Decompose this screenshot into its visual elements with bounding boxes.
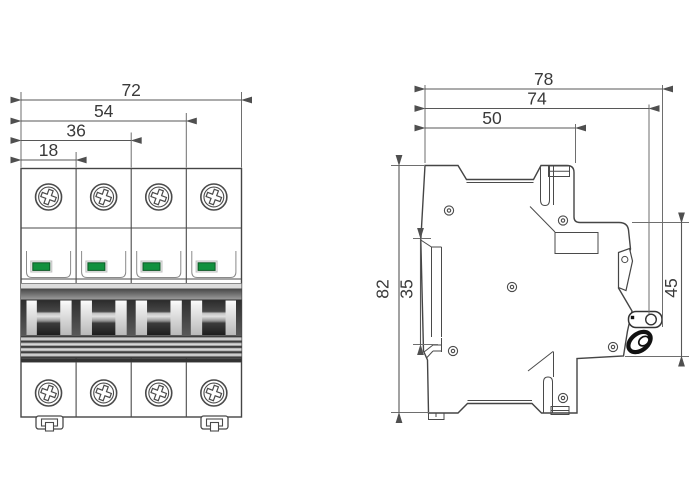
dim-label: 36 xyxy=(66,121,85,141)
side-body xyxy=(421,166,632,414)
dim-depth-74: 74 xyxy=(425,89,649,109)
terminal-screw-icon xyxy=(91,184,117,210)
dim-depth-50: 50 xyxy=(425,108,576,128)
dim-label: 78 xyxy=(534,69,553,89)
dim-width-72: 72 xyxy=(21,80,242,100)
side-view xyxy=(421,166,662,420)
dim-label: 18 xyxy=(39,140,58,160)
terminal-screw-icon xyxy=(36,380,62,406)
din-rail-clip xyxy=(201,416,228,431)
dim-label: 74 xyxy=(527,89,547,109)
terminal-screw-icon xyxy=(146,184,172,210)
green-indicator xyxy=(33,263,50,271)
dim-depth-78: 78 xyxy=(425,69,663,89)
dim-label: 35 xyxy=(397,279,417,298)
mcb-dimension-drawing: 72 54 36 18 xyxy=(0,0,700,500)
terminal-screw-icon xyxy=(36,184,62,210)
dim-width-54: 54 xyxy=(21,101,186,121)
dim-label: 54 xyxy=(94,101,114,121)
green-indicator xyxy=(143,263,160,271)
terminal-screw-icon xyxy=(201,380,227,406)
toggle-band xyxy=(21,284,242,363)
terminal-screw-icon xyxy=(201,184,227,210)
rivet-icon xyxy=(444,206,453,215)
front-dimensions: 72 54 36 18 xyxy=(21,80,242,168)
toggle-handle xyxy=(202,300,225,335)
rivet-icon xyxy=(558,216,567,225)
toggle-handle xyxy=(37,300,60,335)
dim-label: 50 xyxy=(482,108,502,128)
rivet-icon xyxy=(448,346,457,355)
rivet-icon xyxy=(558,393,567,402)
green-indicator xyxy=(198,263,215,271)
dim-label: 45 xyxy=(661,278,681,297)
terminal-screw-icon xyxy=(146,380,172,406)
front-view xyxy=(21,169,242,432)
rivet-icon xyxy=(608,342,617,351)
toggle-handle xyxy=(147,300,170,335)
side-toggle-knob xyxy=(625,328,655,356)
din-rail-clip xyxy=(36,416,63,431)
rivet-icon xyxy=(507,282,516,291)
terminal-screw-icon xyxy=(91,380,117,406)
dim-label: 72 xyxy=(121,80,140,100)
toggle-handle xyxy=(92,300,115,335)
dim-width-18: 18 xyxy=(21,140,76,160)
din-foot xyxy=(429,414,445,420)
latch-lever xyxy=(619,249,633,291)
dim-width-36: 36 xyxy=(21,121,131,141)
drawing-svg: 72 54 36 18 xyxy=(0,0,700,500)
green-indicator xyxy=(88,263,105,271)
dim-label: 82 xyxy=(373,279,393,298)
